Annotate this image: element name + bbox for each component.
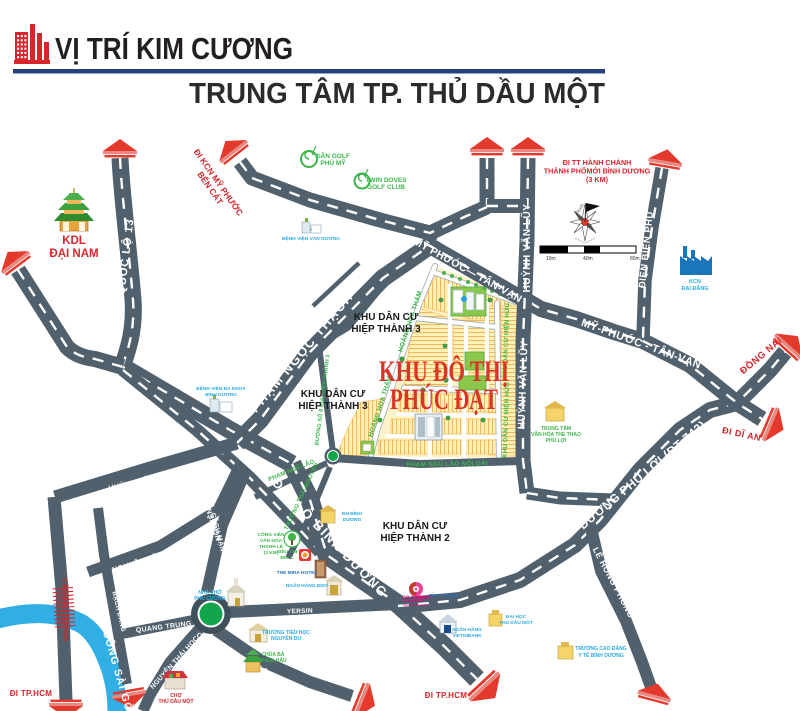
svg-text:10m: 10m [546,256,556,262]
svg-text:Y TẾ BÌNH DƯƠNG: Y TẾ BÌNH DƯƠNG [578,651,624,659]
svg-text:PHÚC ĐẠT: PHÚC ĐẠT [390,383,498,416]
svg-text:DƯƠNG: DƯƠNG [343,517,362,523]
svg-text:SÂN GOLF: SÂN GOLF [316,151,350,160]
svg-text:40m: 40m [583,256,593,262]
svg-text:THỦ DẦU MỘT: THỦ DẦU MỘT [159,697,194,705]
svg-text:ĐẠI ĐĂNG: ĐẠI ĐĂNG [681,285,708,292]
svg-text:ĐI TP.HCM: ĐI TP.HCM [425,691,468,700]
svg-text:GOLF CLUB: GOLF CLUB [367,184,405,191]
svg-text:VỊ TRÍ KIM CƯƠNG: VỊ TRÍ KIM CƯƠNG [55,31,293,66]
svg-text:(3 KM): (3 KM) [586,175,609,184]
svg-text:PHÚ MỸ: PHÚ MỸ [320,158,346,167]
svg-text:ĐI TP.HCM: ĐI TP.HCM [10,689,53,698]
svg-text:HIỆP THÀNH 2: HIỆP THÀNH 2 [380,531,450,544]
svg-text:TRƯỜNG TIỂU HỌC: TRƯỜNG TIỂU HỌC [262,628,310,636]
svg-text:TRUNG TÂM TP. THỦ DẦU MỘT: TRUNG TÂM TP. THỦ DẦU MỘT [189,76,605,110]
svg-text:NGÂN HÀNG: NGÂN HÀNG [452,626,482,633]
svg-text:bạn của mọi nhà: bạn của mọi nhà [403,603,428,607]
svg-text:BIG C: BIG C [280,555,294,561]
svg-text:TRUNG TÂM: TRUNG TÂM [541,425,571,432]
svg-text:TWIN DOVES: TWIN DOVES [365,177,407,184]
svg-text:TRƯỜNG CAO ĐẲNG: TRƯỜNG CAO ĐẲNG [575,644,626,652]
svg-text:THIÊN HẬU: THIÊN HẬU [259,656,287,664]
svg-text:HIỆP THÀNH 3: HIỆP THÀNH 3 [298,399,368,412]
svg-text:PHÚ LỢI: PHÚ LỢI [546,437,567,444]
svg-text:+: + [310,227,313,233]
svg-text:CHÙA BÀ: CHÙA BÀ [262,651,285,658]
svg-text:NGÂN HÀNG BIDV: NGÂN HÀNG BIDV [286,582,329,589]
svg-text:BÌNH DƯƠNG: BÌNH DƯƠNG [429,591,460,598]
svg-text:PHÚ CƯỜNG: PHÚ CƯỜNG [194,594,226,602]
svg-text:80m: 80m [630,256,640,262]
svg-text:KHU DÂN CƯ: KHU DÂN CƯ [383,519,448,532]
svg-text:ĐẠI HỌC: ĐẠI HỌC [506,614,527,620]
svg-text:KHU DÂN CƯ: KHU DÂN CƯ [354,310,419,323]
svg-text:THÀNH PHỐMỚI BÌNH DƯƠNG: THÀNH PHỐMỚI BÌNH DƯƠNG [544,166,651,176]
svg-text:VIETINBANK: VIETINBANK [452,633,482,639]
svg-text:THANH LỄ: THANH LỄ [259,543,284,550]
svg-text:KHU DÂN CƯ: KHU DÂN CƯ [301,387,366,400]
svg-text:HIỆP THÀNH 3: HIỆP THÀNH 3 [351,322,421,335]
svg-text:ĐẠI NAM: ĐẠI NAM [49,248,98,260]
svg-text:KCN: KCN [689,279,701,285]
svg-text:VĂN HÓA THỂ THAO: VĂN HÓA THỂ THAO [531,430,581,438]
svg-text:YERSIN: YERSIN [287,608,313,616]
svg-text:NGUYỄN DU: NGUYỄN DU [271,635,301,642]
svg-text:THE MIRA HOTEL: THE MIRA HOTEL [277,570,318,576]
svg-text:KDL: KDL [62,235,86,247]
svg-text:co.opmart: co.opmart [402,595,432,601]
svg-text:HUỲNH VĂN LŨY: HUỲNH VĂN LŨY [520,204,533,293]
svg-text:NHÀ THỜ: NHÀ THỜ [198,588,222,596]
